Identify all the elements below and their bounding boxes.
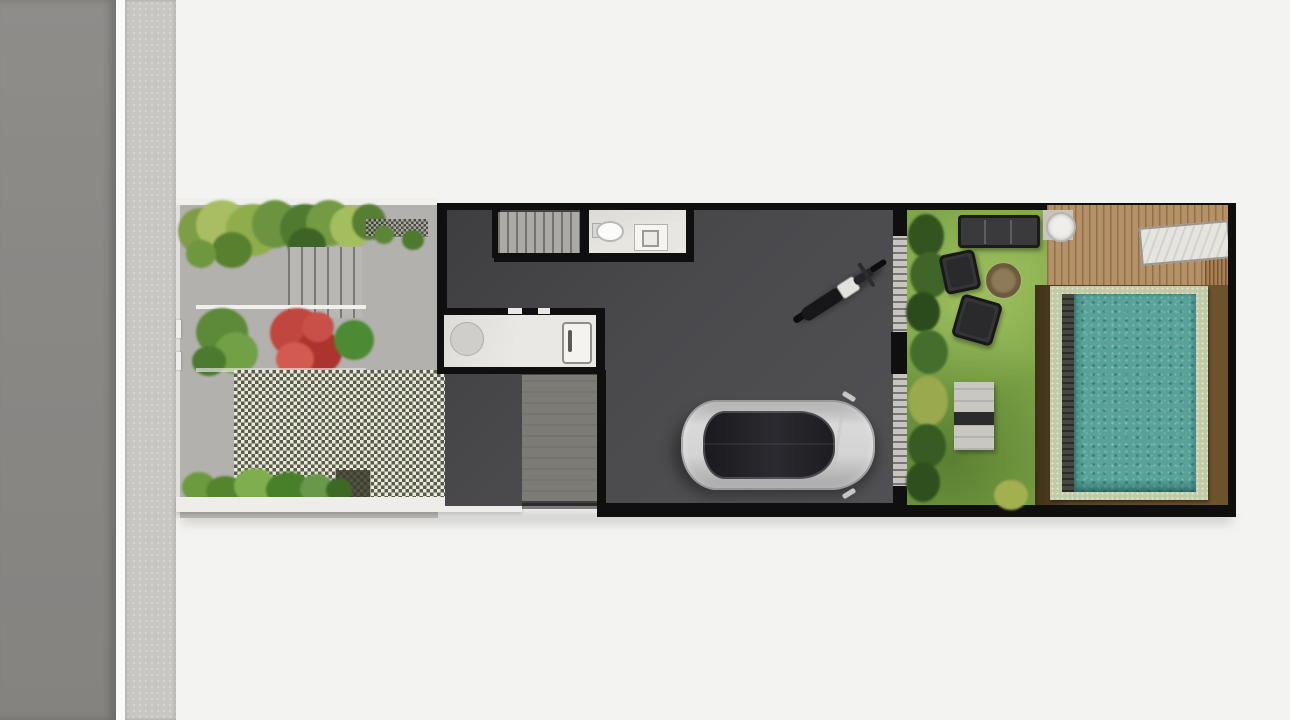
sofa-cushion-seam (1010, 220, 1012, 244)
yellow-bush (994, 480, 1028, 510)
door-frame (893, 210, 907, 236)
round-bush (334, 320, 374, 360)
carport-pillar-wall (597, 370, 606, 506)
hedge (906, 462, 940, 502)
shrub (186, 240, 216, 268)
kitchen-sink (562, 322, 592, 364)
house-left-wall (437, 203, 447, 308)
gate-post (176, 320, 181, 338)
armchair-seat (958, 300, 996, 339)
street (0, 0, 116, 720)
carport-slab (522, 375, 598, 503)
pool-water (1074, 294, 1196, 492)
gate-post (176, 352, 181, 370)
wall (580, 208, 589, 258)
bottom-wall (597, 503, 1236, 517)
carport-shadow (522, 501, 598, 509)
grass-tuft (374, 226, 394, 244)
sidewalk (125, 0, 176, 720)
motorcycle (782, 248, 898, 338)
bathroom-sink (642, 230, 659, 247)
fire-pit (986, 263, 1021, 298)
wall (686, 208, 694, 258)
kitchen-pass (508, 308, 522, 314)
toilet (596, 221, 624, 242)
right-boundary-wall (1228, 203, 1236, 517)
bathroom-door (676, 248, 686, 253)
hedge (908, 424, 946, 468)
car-glass-roof (703, 411, 835, 479)
pool-overflow-edge (1062, 294, 1074, 492)
staircase (498, 212, 580, 257)
site-plan-image (0, 0, 1290, 720)
kitchen-pass (538, 308, 550, 314)
curb-line (116, 0, 125, 720)
sun-lounger (1139, 220, 1232, 266)
hedge (910, 330, 948, 374)
door-frame (893, 486, 907, 506)
roof-seam (700, 443, 836, 445)
sofa-cushion-seam (984, 220, 986, 244)
shrub (212, 232, 252, 268)
kitchen-round-table (450, 322, 484, 356)
bench-stripe (954, 412, 994, 425)
outdoor-sofa (958, 215, 1040, 248)
red-flowering-shrub (302, 312, 334, 342)
sink-faucet (568, 330, 572, 352)
yellow-bush (908, 376, 948, 426)
garden-bench (954, 382, 994, 450)
hedge (906, 292, 940, 332)
wall (494, 253, 694, 262)
grass-tuft (402, 230, 424, 250)
round-deck-table (1046, 212, 1076, 242)
armchair-seat (945, 256, 974, 288)
